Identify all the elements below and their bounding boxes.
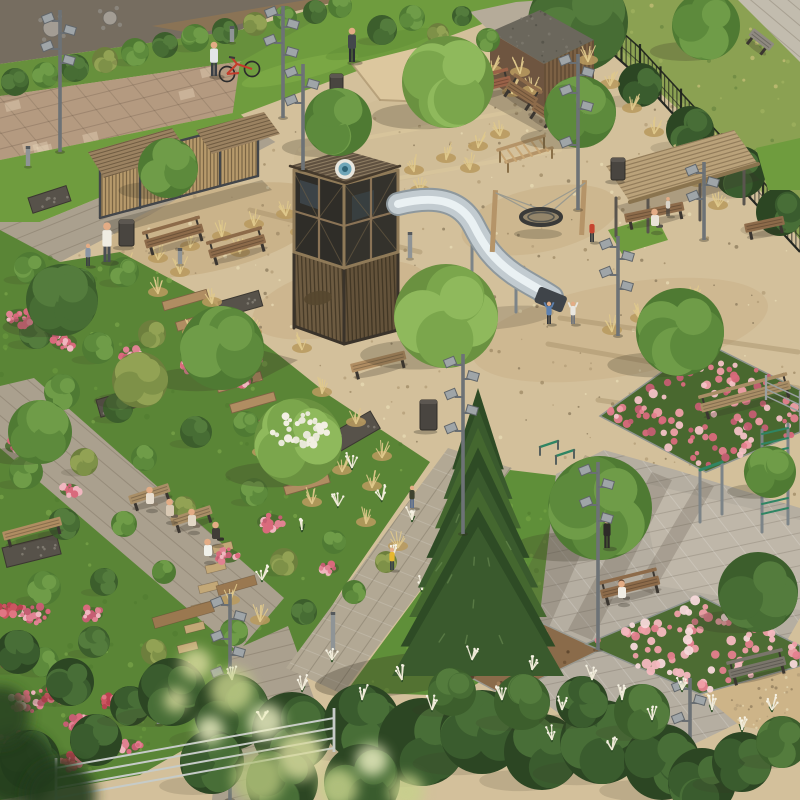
garden-flowers xyxy=(62,341,67,346)
garden-flowers xyxy=(95,608,101,614)
gravel-speckle-dot xyxy=(481,205,484,208)
park-visitors-torso xyxy=(85,248,90,257)
bushes-by-top-path xyxy=(487,31,497,41)
gravel-speckle-dot xyxy=(568,412,571,415)
flower-bed-right-blooms-dot xyxy=(709,433,717,441)
lawn-wedge-texture-dot xyxy=(539,518,542,521)
hydrangea-blooms-dot xyxy=(667,670,672,675)
flower-bed-right-blooms-dot xyxy=(661,430,667,436)
garden-flowers xyxy=(325,565,331,571)
gravel-speckle-dot xyxy=(553,153,555,155)
garden-shrubs xyxy=(333,533,343,543)
gravel-speckle-dot xyxy=(728,242,731,245)
garden-flowers xyxy=(277,521,283,527)
park-visitors-leg xyxy=(86,257,88,266)
gravel-speckle-dot xyxy=(264,292,267,295)
park-visitors-leg xyxy=(571,315,573,324)
gravel-speckle-dot xyxy=(613,268,615,270)
big-spruce-needles xyxy=(473,599,474,608)
park-aerial-render xyxy=(0,0,800,800)
garden-dry-tufts xyxy=(341,460,342,472)
gravel-speckle-dot xyxy=(521,339,522,340)
garden-shrubs xyxy=(42,650,55,663)
flower-bed-right-blooms-dot xyxy=(695,426,704,435)
bollard-light-cap xyxy=(408,232,412,235)
garden-texture-dot xyxy=(88,767,92,771)
meadow-texture-dot xyxy=(774,84,778,88)
bottom-plume-grass xyxy=(395,670,397,672)
gravel-speckle-dot xyxy=(531,245,534,248)
flower-bed-right-blooms-dot xyxy=(668,417,675,424)
garden-texture-dot xyxy=(142,727,146,731)
garden-plumes xyxy=(405,506,407,508)
flower-bed-right-blooms-dot xyxy=(671,438,678,445)
flower-bed-right-blooms-dot xyxy=(690,455,696,461)
blossom-specks xyxy=(282,412,290,420)
garden-dry-tufts xyxy=(366,510,367,524)
gravel-speckle-dot xyxy=(498,142,501,145)
blossom-specks xyxy=(286,427,291,432)
gravel-wedge-speckle-dot xyxy=(785,676,788,679)
gravel-wedge-speckle-dot xyxy=(785,691,788,694)
gravel-speckle-dot xyxy=(664,262,666,264)
gravel-speckle-dot xyxy=(413,144,415,146)
gravel-speckle-dot xyxy=(236,266,239,269)
big-spruce-needles xyxy=(474,557,475,566)
gravel-speckle-dot xyxy=(270,270,273,273)
bottom-plume-grass xyxy=(433,694,435,696)
garden-texture-dot xyxy=(48,256,53,261)
blossom-specks xyxy=(278,440,284,446)
lawn-wedge-texture-dot xyxy=(527,512,530,515)
bottom-plume-grass xyxy=(329,650,331,652)
gravel-speckle-dot xyxy=(537,255,540,258)
gravel-speckle-dot xyxy=(489,349,493,353)
bushes-by-top-path xyxy=(457,15,468,26)
bottom-plume-grass xyxy=(553,731,555,733)
cafe-table-chair xyxy=(115,6,119,10)
park-visitors-head xyxy=(349,28,356,35)
storage-shelter-roof-texture-dot xyxy=(516,41,517,42)
park-visitors-head xyxy=(666,197,670,201)
park-trees xyxy=(334,96,363,125)
gravel-speckle-dot xyxy=(545,156,547,158)
storage-shelter-roof-texture-dot xyxy=(512,28,514,30)
bollard-light-cap xyxy=(178,248,182,251)
bottom-plume-grass xyxy=(565,697,567,699)
garden-flowers xyxy=(222,552,226,556)
gravel-speckle-dot xyxy=(543,323,544,324)
meadow-trees xyxy=(702,0,731,28)
bottom-plume-grass xyxy=(775,696,777,698)
bottom-plume-grass xyxy=(545,726,547,728)
park-visitors-shadow xyxy=(166,521,178,525)
gravel-wedge-speckle-dot xyxy=(731,699,733,701)
gravel-speckle-dot xyxy=(519,390,523,394)
flower-bed-right-blooms-dot xyxy=(608,407,613,412)
hedge-top-row xyxy=(43,65,54,76)
gravel-speckle-dot xyxy=(674,461,676,463)
gravel-speckle-dot xyxy=(288,225,290,227)
park-visitors-shadow xyxy=(204,561,216,565)
park-visitors-leg xyxy=(390,561,392,570)
park-visitors-leg xyxy=(666,208,667,216)
cafe-table-chair xyxy=(61,34,65,38)
bottom-plume-grass xyxy=(712,694,714,696)
garden-flowers xyxy=(6,311,13,318)
park-visitors-head xyxy=(651,209,658,216)
garden-flowers xyxy=(319,566,324,571)
multi-head-lamps-pole xyxy=(58,10,62,152)
gravel-speckle-dot xyxy=(645,457,648,460)
garden-shrubs xyxy=(163,563,173,573)
storage-shelter-roof-texture-dot xyxy=(543,61,545,63)
hydrangea-blooms-dot xyxy=(684,646,693,655)
garden-plumes xyxy=(333,493,335,495)
gravel-speckle-dot xyxy=(688,212,692,216)
storage-shelter-roof-texture-dot xyxy=(548,33,551,36)
bottom-plume-grass xyxy=(477,648,479,650)
park-trees xyxy=(164,145,189,170)
garden-flowers xyxy=(67,345,74,352)
garden-texture-dot xyxy=(245,442,249,446)
flower-bed-right-blooms-dot xyxy=(712,445,718,451)
gravel-speckle-dot xyxy=(580,352,582,354)
gravel-wedge-speckle-dot xyxy=(761,702,764,705)
bottom-plume-grass xyxy=(606,740,608,742)
hydrangea-blooms-dot xyxy=(640,618,650,628)
gravel-speckle-dot xyxy=(383,418,385,420)
gravel-speckle-dot xyxy=(442,228,445,231)
corner-red-flowers xyxy=(10,603,17,610)
gravel-speckle-dot xyxy=(414,265,415,266)
storage-shelter-roof-texture-dot xyxy=(542,51,544,53)
park-visitors-torso xyxy=(570,306,575,315)
garden-texture-dot xyxy=(171,431,175,435)
meadow-texture-dot xyxy=(742,79,745,82)
bushes-by-top-path xyxy=(461,8,469,16)
gravel-speckle-dot xyxy=(259,326,262,329)
garden-plumes xyxy=(417,581,419,583)
garden-texture-dot xyxy=(94,387,98,391)
hydrangea-blooms-dot xyxy=(675,668,684,677)
hedge-top-row xyxy=(254,15,264,25)
park-visitors-leg xyxy=(592,233,594,242)
hydrangea-blooms-dot xyxy=(768,645,773,650)
hydrangea-blooms-dot xyxy=(621,627,630,636)
foreground-bokeh xyxy=(248,704,284,740)
garden-texture-dot xyxy=(156,271,159,274)
flower-bed-right-blooms-dot xyxy=(688,428,693,433)
garden-shrubs xyxy=(302,602,313,613)
park-visitors-shadow xyxy=(618,603,630,607)
gravel-wedge-speckle-dot xyxy=(786,708,789,711)
flower-bed-right-blooms-dot xyxy=(659,416,667,424)
bottom-plume-grass xyxy=(585,665,587,667)
blossom-specks xyxy=(305,432,309,436)
garden-shrubs xyxy=(150,323,162,335)
gravel-speckle-dot xyxy=(793,371,796,374)
storage-shelter-roof-texture-dot xyxy=(521,42,524,45)
garden-texture-dot xyxy=(172,631,178,637)
garden-plumes xyxy=(255,571,257,573)
gravel-speckle-dot xyxy=(271,304,274,307)
gravel-speckle-dot xyxy=(752,322,754,324)
bottom-shrub-band xyxy=(579,682,601,704)
corner-red-flowers xyxy=(102,695,107,700)
gravel-wedge-speckle-dot xyxy=(759,697,762,700)
bottom-plume-grass xyxy=(550,724,552,726)
park-visitors-leg xyxy=(107,246,110,263)
flower-bed-right-blooms-dot xyxy=(755,418,763,426)
garden-flowers xyxy=(66,493,71,498)
meadow-texture-dot xyxy=(720,97,722,99)
bottom-plume-grass xyxy=(590,672,592,674)
hydrangea-blooms-dot xyxy=(690,595,700,605)
gravel-speckle-dot xyxy=(295,131,297,133)
blossom-specks xyxy=(301,413,306,418)
park-visitors-head xyxy=(590,220,594,224)
gravel-speckle-dot xyxy=(145,250,147,252)
flower-bed-right-blooms-dot xyxy=(776,415,782,421)
park-visitors-leg xyxy=(590,233,592,242)
gravel-speckle-dot xyxy=(564,364,567,367)
garden-flowers xyxy=(83,615,87,619)
gravel-speckle-dot xyxy=(744,355,746,357)
park-trees xyxy=(594,468,638,512)
bollard-light xyxy=(408,232,412,258)
gravel-speckle-dot xyxy=(402,434,405,437)
meadow-texture-dot xyxy=(781,81,784,84)
storage-shelter-roof-texture-dot xyxy=(541,41,544,44)
gravel-speckle-dot xyxy=(638,153,640,155)
flower-bed-right-blooms-dot xyxy=(731,374,739,382)
park-visitors-torso xyxy=(348,34,356,48)
gravel-speckle-dot xyxy=(552,404,554,406)
gravel-wedge-speckle-dot xyxy=(759,718,761,720)
gravel-wedge-speckle-dot xyxy=(784,692,786,694)
gravel-speckle-dot xyxy=(552,361,554,363)
flower-bed-right-blooms-dot xyxy=(614,414,619,419)
meadow-texture-dot xyxy=(777,98,779,100)
garden-texture-dot xyxy=(4,292,7,295)
flower-bed-right-blooms-dot xyxy=(643,412,650,419)
gravel-speckle-dot xyxy=(78,254,80,256)
gravel-wedge-speckle-dot xyxy=(742,705,744,707)
garden-flowers xyxy=(235,553,241,559)
park-scene-canvas xyxy=(0,0,800,800)
blossom-specks xyxy=(305,411,310,416)
garden-texture-dot xyxy=(97,266,102,271)
park-trees xyxy=(36,407,63,434)
garden-texture-dot xyxy=(139,736,142,739)
garden-texture-dot xyxy=(225,403,230,408)
meadow-texture-dot xyxy=(697,85,700,88)
hydrangea-blooms-dot xyxy=(631,632,640,641)
bottom-plume-grass xyxy=(617,684,619,686)
garden-texture-dot xyxy=(61,713,65,717)
garden-flowers xyxy=(126,749,131,754)
park-visitors-head xyxy=(390,548,394,552)
blossom-specks xyxy=(313,420,318,425)
gravel-speckle-dot xyxy=(644,123,647,126)
gravel-speckle-dot xyxy=(416,441,418,443)
garden-flowers xyxy=(63,721,69,727)
gravel-speckle-dot xyxy=(255,264,256,265)
gravel-speckle-dot xyxy=(525,419,527,421)
gravel-speckle-dot xyxy=(386,405,390,409)
gravel-speckle-dot xyxy=(666,281,669,284)
park-visitors-torso xyxy=(589,224,594,233)
flower-bed-right-blooms-dot xyxy=(737,451,744,458)
gravel-speckle-dot xyxy=(586,161,588,163)
blossom-specks xyxy=(309,436,315,442)
bollard-light-cap xyxy=(230,26,234,29)
foreground-bokeh xyxy=(210,668,254,712)
garden-plumes xyxy=(377,489,379,491)
flower-bed-right-blooms-dot xyxy=(748,437,754,443)
bottom-shrub-band xyxy=(287,701,321,735)
hydrangea-blooms-dot xyxy=(679,605,689,615)
garden-texture-dot xyxy=(102,599,107,604)
flower-bed-right-blooms-dot xyxy=(708,364,714,370)
bottom-shrub-band xyxy=(449,674,469,694)
hydrangea-blooms-dot xyxy=(702,604,708,610)
bottom-shrub-band xyxy=(580,738,626,784)
flower-bed-right-blooms-dot xyxy=(634,396,642,404)
park-trees xyxy=(753,561,787,595)
garden-flowers xyxy=(136,743,140,747)
garden-shrubs xyxy=(28,256,41,269)
park-visitors-head xyxy=(103,222,111,230)
hydrangea-blooms-dot xyxy=(726,636,736,646)
flower-bed-right-blooms-dot xyxy=(727,367,733,373)
bottom-plume-grass xyxy=(714,698,716,700)
garden-texture-dot xyxy=(119,342,123,346)
bottom-plume-grass xyxy=(565,700,567,702)
mulch-texture-dot xyxy=(563,661,566,664)
garden-plumes xyxy=(342,495,344,497)
bottom-plume-grass xyxy=(557,695,559,697)
garden-texture-dot xyxy=(400,469,403,472)
storage-shelter-roof-texture-dot xyxy=(540,11,542,13)
hydrangea-blooms-dot xyxy=(630,643,638,651)
garden-texture-dot xyxy=(65,652,68,655)
storage-shelter-roof-texture-dot xyxy=(535,24,537,26)
gravel-speckle-dot xyxy=(343,376,346,379)
garden-shrubs xyxy=(82,451,94,463)
gravel-speckle-dot xyxy=(522,165,525,168)
garden-shrubs xyxy=(60,378,75,393)
tower-dome-center xyxy=(342,166,348,172)
bottom-plume-grass xyxy=(651,709,653,711)
bollard-light xyxy=(331,612,335,650)
hydrangea-blooms-dot xyxy=(647,637,655,645)
hydrangea-blooms-dot xyxy=(629,622,635,628)
gravel-speckle-dot xyxy=(263,163,266,166)
hydrangea-blooms-dot xyxy=(685,627,693,635)
gravel-wedge-speckle-dot xyxy=(767,716,769,718)
garden-shrubs xyxy=(183,499,193,509)
bottom-plume-grass xyxy=(712,698,714,700)
meadow-texture-dot xyxy=(786,60,790,64)
mulch-texture-dot xyxy=(566,650,569,653)
bottom-plume-grass xyxy=(325,649,327,651)
bushes-outside-fence xyxy=(777,194,797,214)
flower-bed-right-blooms-dot xyxy=(664,443,672,451)
bottom-shrub-band xyxy=(67,664,87,684)
gravel-speckle-dot xyxy=(319,365,321,367)
meadow-texture-dot xyxy=(749,28,752,31)
garden-texture-dot xyxy=(398,442,402,446)
gravel-speckle-dot xyxy=(589,367,592,370)
garden-shrubs xyxy=(96,336,109,349)
hydrangea-blooms-dot xyxy=(790,660,798,668)
hydrangea-blooms-dot xyxy=(752,645,760,653)
bottom-plume-grass xyxy=(739,717,741,719)
garden-plumes xyxy=(331,495,333,497)
meadow-texture-dot xyxy=(770,139,774,143)
multi-head-lamps-pole xyxy=(576,54,580,210)
multi-head-lamps-pole xyxy=(301,64,305,170)
park-visitors-head xyxy=(212,522,219,529)
flower-bed-right-blooms-dot xyxy=(695,451,700,456)
hydrangea-blooms-dot xyxy=(667,625,672,630)
storage-shelter-roof-texture-dot xyxy=(544,13,547,16)
flower-bed-right-blooms-dot xyxy=(675,409,683,417)
hydrangea-blooms-dot xyxy=(667,652,675,660)
garden-texture-dot xyxy=(110,643,114,647)
bottom-plume-grass xyxy=(550,732,552,734)
garden-flowers xyxy=(42,615,46,619)
bottom-plume-grass xyxy=(547,732,549,734)
bottom-plume-grass xyxy=(306,674,308,676)
bottom-plume-grass xyxy=(684,678,686,680)
bottom-plume-grass xyxy=(473,648,475,650)
gravel-speckle-dot xyxy=(402,412,405,415)
meadow-texture-dot xyxy=(659,59,663,63)
park-trees xyxy=(675,298,712,335)
gravel-speckle-dot xyxy=(600,163,603,166)
garden-flowers xyxy=(45,609,50,614)
garden-flowers xyxy=(88,614,94,620)
garden-flowers xyxy=(36,603,44,611)
bottom-plume-grass xyxy=(676,677,678,679)
park-visitors-shadow xyxy=(212,544,224,548)
hedge-top-row xyxy=(133,41,145,53)
gravel-speckle-dot xyxy=(526,129,529,132)
park-visitors-head xyxy=(410,486,414,490)
park-trees xyxy=(440,276,484,320)
garden-shrubs xyxy=(122,260,135,273)
bottom-plume-grass xyxy=(504,687,506,689)
garden-texture-dot xyxy=(301,577,304,580)
bushes-by-top-path xyxy=(380,18,393,31)
hedge-top-row xyxy=(13,71,25,83)
gravel-speckle-dot xyxy=(553,256,556,259)
multi-head-lamps-pole xyxy=(461,354,465,534)
garden-shrubs xyxy=(102,571,114,583)
park-visitors-leg xyxy=(103,246,106,263)
red-bicycle-handlebar xyxy=(229,57,235,58)
park-visitors-head xyxy=(571,302,575,306)
flower-bed-right-blooms-dot xyxy=(641,405,646,410)
park-visitors-head xyxy=(166,499,173,506)
garden-flowers xyxy=(61,483,67,489)
bottom-plume-grass xyxy=(359,687,361,689)
gravel-speckle-dot xyxy=(466,149,468,151)
bottom-plume-grass xyxy=(561,702,563,704)
